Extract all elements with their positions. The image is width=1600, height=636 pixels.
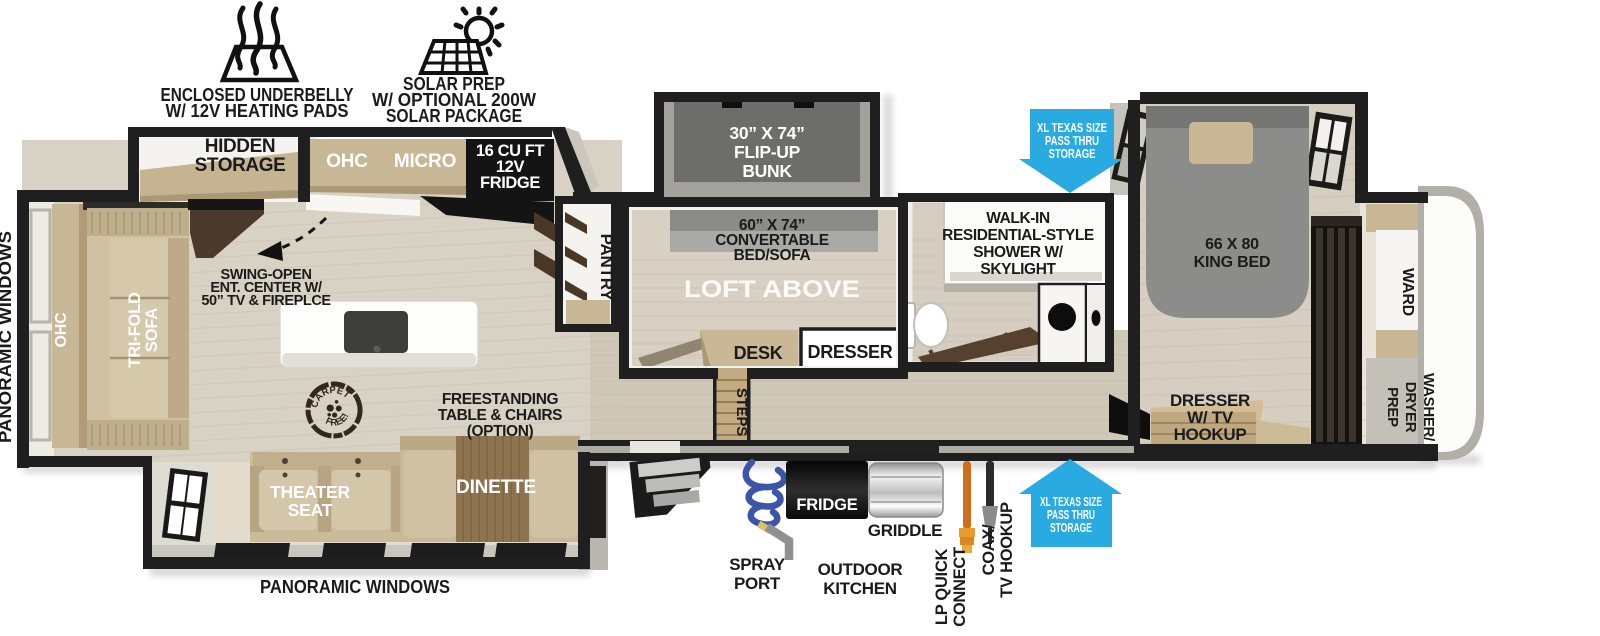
svg-text:30” X 74”: 30” X 74”	[729, 123, 804, 143]
svg-text:TABLE & CHAIRS: TABLE & CHAIRS	[438, 407, 562, 424]
svg-text:OHC: OHC	[53, 312, 70, 348]
svg-text:WALK-IN: WALK-IN	[986, 210, 1050, 227]
svg-text:KITCHEN: KITCHEN	[823, 579, 896, 598]
svg-text:TRI-FOLD: TRI-FOLD	[126, 292, 144, 368]
svg-text:PANTRY: PANTRY	[597, 234, 616, 302]
svg-text:FREESTANDING: FREESTANDING	[442, 391, 559, 408]
svg-text:BED/SOFA: BED/SOFA	[734, 247, 811, 264]
svg-text:CONNECT: CONNECT	[951, 547, 969, 627]
svg-text:COAX/: COAX/	[980, 524, 998, 575]
svg-text:50” TV & FIREPLCE: 50” TV & FIREPLCE	[201, 293, 331, 309]
svg-text:RESIDENTIAL-STYLE: RESIDENTIAL-STYLE	[942, 227, 1094, 244]
svg-text:THEATER: THEATER	[270, 482, 351, 502]
svg-text:SKYLIGHT: SKYLIGHT	[980, 261, 1056, 278]
svg-text:SOLAR PACKAGE: SOLAR PACKAGE	[386, 106, 522, 126]
svg-text:66 X 80: 66 X 80	[1205, 236, 1259, 253]
svg-text:HIDDEN: HIDDEN	[205, 136, 275, 157]
svg-text:DINETTE: DINETTE	[456, 477, 536, 498]
svg-text:BUNK: BUNK	[742, 161, 792, 181]
svg-text:TV HOOKUP: TV HOOKUP	[998, 502, 1016, 598]
svg-text:SEAT: SEAT	[288, 500, 333, 520]
svg-text:WARD: WARD	[1399, 268, 1416, 316]
svg-text:GRIDDLE: GRIDDLE	[868, 521, 942, 540]
svg-text:WASHER/: WASHER/	[1420, 373, 1437, 442]
svg-text:DRYER: DRYER	[1402, 382, 1419, 433]
svg-text:DESK: DESK	[734, 343, 783, 363]
svg-text:KING BED: KING BED	[1194, 254, 1271, 271]
svg-text:XL TEXAS SIZE: XL TEXAS SIZE	[1040, 495, 1102, 509]
svg-text:SPRAY: SPRAY	[729, 555, 785, 574]
svg-text:PANORAMIC WINDOWS: PANORAMIC WINDOWS	[260, 577, 450, 597]
svg-text:OHC: OHC	[326, 151, 368, 172]
svg-text:SHOWER W/: SHOWER W/	[973, 244, 1063, 261]
svg-text:STORAGE: STORAGE	[195, 155, 286, 176]
svg-text:DRESSER: DRESSER	[808, 342, 893, 362]
svg-text:LOFT ABOVE: LOFT ABOVE	[684, 276, 860, 303]
svg-text:STORAGE: STORAGE	[1049, 146, 1096, 161]
svg-text:FRIDGE: FRIDGE	[480, 174, 540, 192]
svg-text:SOFA: SOFA	[143, 308, 161, 352]
svg-text:OUTDOOR: OUTDOOR	[818, 560, 903, 579]
svg-text:W/ 12V HEATING PADS: W/ 12V HEATING PADS	[166, 101, 349, 121]
svg-text:PASS THRU: PASS THRU	[1047, 508, 1095, 522]
svg-text:STEPS: STEPS	[733, 388, 750, 436]
svg-text:STORAGE: STORAGE	[1050, 521, 1092, 535]
svg-text:HOOKUP: HOOKUP	[1174, 425, 1247, 444]
svg-text:LP QUICK: LP QUICK	[933, 549, 951, 626]
svg-text:PREP: PREP	[1384, 387, 1401, 427]
svg-text:PORT: PORT	[734, 574, 781, 593]
svg-text:FRIDGE: FRIDGE	[796, 496, 857, 514]
svg-text:PANORAMIC WINDOWS: PANORAMIC WINDOWS	[0, 231, 15, 443]
svg-text:MICRO: MICRO	[394, 151, 456, 172]
svg-text:(OPTION): (OPTION)	[467, 423, 534, 440]
svg-text:FLIP-UP: FLIP-UP	[734, 142, 801, 162]
